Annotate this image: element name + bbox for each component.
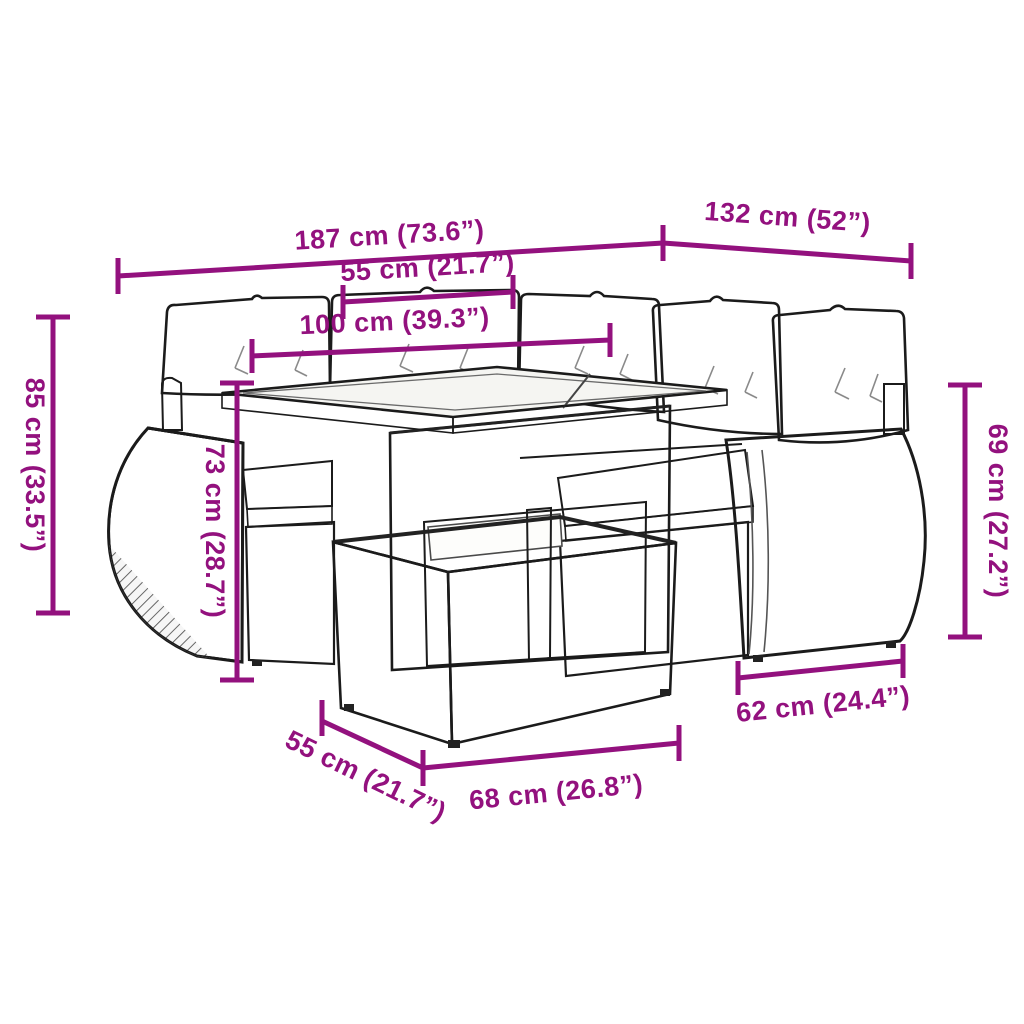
diagram-svg: 187 cm (73.6”) 132 cm (52”) 55 cm (21.7”… [0, 0, 1024, 1024]
dimension-stool-width-label: 68 cm (26.8”) [468, 769, 645, 816]
sofa-foot-right-a [753, 655, 763, 662]
sofa-armrest-right [726, 429, 925, 662]
dimension-armrest-height-label: 69 cm (27.2”) [983, 424, 1013, 599]
table [222, 367, 727, 670]
back-post-left [162, 378, 182, 430]
stool-foot-b [448, 740, 460, 748]
dimension-table-length-label: 100 cm (39.3”) [299, 302, 490, 341]
seat-cushion-right [558, 450, 753, 541]
dimension-total-height-label: 85 cm (33.5”) [20, 378, 50, 553]
dimension-table-width-label: 55 cm (21.7”) [339, 247, 515, 287]
dimension-stool-depth: 55 cm (21.7”) [281, 700, 451, 827]
dimension-armrest-height: 69 cm (27.2”) [948, 385, 1013, 637]
stool-foot-c [660, 689, 670, 696]
dimension-overall-depth-label: 132 cm (52”) [703, 196, 871, 238]
dimension-table-length: 100 cm (39.3”) [252, 302, 610, 373]
product-dimension-diagram: 187 cm (73.6”) 132 cm (52”) 55 cm (21.7”… [0, 0, 1024, 1024]
seat-cushion-left [243, 461, 332, 527]
table-glass-top [222, 367, 727, 417]
stool-foot-a [344, 704, 354, 711]
dimension-total-height: 85 cm (33.5”) [20, 317, 70, 613]
dimension-table-height-label: 73 cm (28.7”) [200, 444, 230, 619]
sofa-foot-left [252, 660, 262, 666]
sofa-base-left [246, 522, 334, 664]
dimension-overall-depth: 132 cm (52”) [663, 196, 911, 279]
back-cushion-5 [773, 306, 908, 443]
dimension-stool-width: 68 cm (26.8”) [423, 725, 679, 815]
back-post-corner [884, 384, 904, 434]
back-cushion-4 [653, 297, 782, 434]
sofa-foot-right-b [886, 641, 896, 648]
dimension-seat-depth-label: 62 cm (24.4”) [735, 680, 912, 728]
furniture-line-art [40, 288, 925, 748]
